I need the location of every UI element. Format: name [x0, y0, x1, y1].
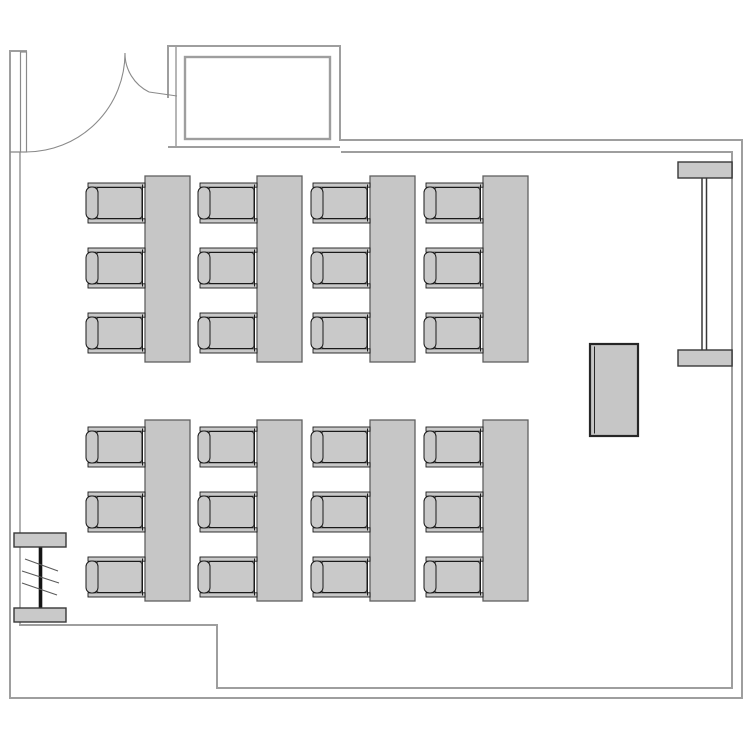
chair-backrest: [311, 252, 323, 284]
chair-armrest-top: [200, 492, 257, 496]
radiator-left-cap-bottom: [14, 608, 66, 622]
chair-armrest-bottom: [313, 349, 370, 353]
chair-seat: [434, 188, 480, 219]
chair-armrest-bottom: [200, 284, 257, 288]
chair-backrest: [86, 187, 98, 219]
chair-armrest-top: [200, 557, 257, 561]
chair-armrest-top: [88, 313, 145, 317]
student-chair: [86, 492, 145, 532]
student-chair: [198, 427, 257, 467]
desk-column: [424, 420, 528, 601]
chair-backrest: [198, 561, 210, 593]
chair-armrest-top: [313, 427, 370, 431]
chair-armrest-top: [200, 183, 257, 187]
door-leaf-open: [21, 52, 27, 152]
chair-seat: [434, 318, 480, 349]
student-chair: [86, 183, 145, 223]
chair-seat: [96, 432, 142, 463]
student-chair: [311, 248, 370, 288]
student-chair: [424, 427, 483, 467]
chair-backrest: [311, 496, 323, 528]
chair-seat: [434, 253, 480, 284]
chair-armrest-bottom: [426, 528, 483, 532]
chair-backrest: [198, 317, 210, 349]
radiator-right-cap-top: [678, 162, 732, 178]
chair-backrest: [86, 496, 98, 528]
chair-seat: [208, 253, 254, 284]
chair-armrest-bottom: [200, 463, 257, 467]
chair-armrest-bottom: [313, 463, 370, 467]
student-chair: [424, 313, 483, 353]
chair-armrest-top: [426, 492, 483, 496]
chair-backrest: [311, 187, 323, 219]
chair-backrest: [86, 252, 98, 284]
student-table: [145, 176, 190, 362]
chair-backrest: [424, 317, 436, 349]
chair-backrest: [86, 561, 98, 593]
student-chair: [198, 248, 257, 288]
chair-armrest-bottom: [426, 219, 483, 223]
chair-seat: [434, 562, 480, 593]
chair-armrest-bottom: [88, 463, 145, 467]
chair-armrest-bottom: [200, 349, 257, 353]
chair-armrest-top: [313, 557, 370, 561]
chair-armrest-top: [426, 313, 483, 317]
student-table: [370, 420, 415, 601]
chair-seat: [96, 188, 142, 219]
chair-backrest: [198, 187, 210, 219]
chair-armrest-top: [88, 183, 145, 187]
chair-seat: [321, 253, 367, 284]
floorplan-svg: [0, 0, 750, 750]
chair-seat: [321, 497, 367, 528]
chair-armrest-bottom: [313, 219, 370, 223]
desk-column: [198, 176, 302, 362]
student-chair: [311, 557, 370, 597]
chair-armrest-top: [313, 183, 370, 187]
chair-backrest: [311, 431, 323, 463]
back-desk-group: [86, 420, 528, 601]
student-chair: [424, 248, 483, 288]
chair-seat: [434, 497, 480, 528]
chair-backrest: [198, 431, 210, 463]
door-swing-arc-large: [26, 53, 125, 152]
student-chair: [198, 557, 257, 597]
student-chair: [311, 183, 370, 223]
student-chair: [424, 492, 483, 532]
storage-desk: [590, 344, 638, 436]
student-chair: [86, 557, 145, 597]
chair-seat: [208, 497, 254, 528]
chair-seat: [321, 318, 367, 349]
chair-armrest-bottom: [313, 593, 370, 597]
chair-armrest-top: [200, 313, 257, 317]
student-chair: [86, 313, 145, 353]
student-chair: [424, 183, 483, 223]
chair-armrest-bottom: [426, 463, 483, 467]
chair-armrest-top: [313, 313, 370, 317]
chair-armrest-top: [426, 557, 483, 561]
chair-armrest-bottom: [426, 593, 483, 597]
chair-armrest-top: [88, 427, 145, 431]
chair-armrest-top: [88, 557, 145, 561]
radiator-left-cap-top: [14, 533, 66, 547]
door-leaf-small: [149, 92, 177, 96]
front-desk-group: [86, 176, 528, 362]
student-chair: [311, 427, 370, 467]
chair-armrest-top: [313, 492, 370, 496]
chair-seat: [321, 188, 367, 219]
chair-armrest-bottom: [88, 528, 145, 532]
student-table: [370, 176, 415, 362]
chair-backrest: [311, 317, 323, 349]
chair-seat: [96, 497, 142, 528]
chair-armrest-top: [88, 248, 145, 252]
chair-armrest-bottom: [200, 528, 257, 532]
chair-seat: [208, 188, 254, 219]
radiator-right-cap-bottom: [678, 350, 732, 366]
chair-backrest: [86, 317, 98, 349]
chair-armrest-bottom: [88, 284, 145, 288]
chair-seat: [434, 432, 480, 463]
student-chair: [86, 248, 145, 288]
chair-backrest: [198, 496, 210, 528]
student-table: [483, 420, 528, 601]
chair-seat: [208, 432, 254, 463]
chair-seat: [96, 253, 142, 284]
chair-backrest: [424, 187, 436, 219]
chair-backrest: [198, 252, 210, 284]
chair-armrest-bottom: [313, 528, 370, 532]
chair-armrest-top: [426, 248, 483, 252]
chair-armrest-top: [88, 492, 145, 496]
chair-armrest-top: [200, 248, 257, 252]
chair-backrest: [86, 431, 98, 463]
chair-armrest-top: [313, 248, 370, 252]
desk-column: [86, 176, 190, 362]
student-table: [145, 420, 190, 601]
student-chair: [424, 557, 483, 597]
chair-seat: [96, 318, 142, 349]
student-table: [257, 420, 302, 601]
student-chair: [198, 183, 257, 223]
vestibule-inner-wall: [185, 57, 330, 139]
chair-armrest-top: [200, 427, 257, 431]
student-chair: [311, 492, 370, 532]
chair-armrest-top: [426, 427, 483, 431]
chair-seat: [208, 562, 254, 593]
chair-backrest: [424, 496, 436, 528]
desk-column: [424, 176, 528, 362]
door-swing-arc-small: [125, 53, 149, 92]
student-chair: [198, 492, 257, 532]
chair-armrest-bottom: [88, 593, 145, 597]
chair-armrest-bottom: [200, 219, 257, 223]
chair-armrest-bottom: [200, 593, 257, 597]
chair-armrest-bottom: [426, 284, 483, 288]
desk-column: [311, 176, 415, 362]
floorplan-canvas: [0, 0, 750, 750]
chair-armrest-bottom: [426, 349, 483, 353]
student-chair: [311, 313, 370, 353]
chair-armrest-bottom: [313, 284, 370, 288]
chair-armrest-bottom: [88, 219, 145, 223]
desk-column: [311, 420, 415, 601]
chair-backrest: [311, 561, 323, 593]
chair-seat: [96, 562, 142, 593]
chair-seat: [321, 432, 367, 463]
chair-seat: [321, 562, 367, 593]
chair-backrest: [424, 561, 436, 593]
desk-column: [198, 420, 302, 601]
student-table: [257, 176, 302, 362]
chair-armrest-bottom: [88, 349, 145, 353]
student-chair: [86, 427, 145, 467]
chair-backrest: [424, 431, 436, 463]
desk-column: [86, 420, 190, 601]
chair-backrest: [424, 252, 436, 284]
student-chair: [198, 313, 257, 353]
student-table: [483, 176, 528, 362]
chair-armrest-top: [426, 183, 483, 187]
chair-seat: [208, 318, 254, 349]
